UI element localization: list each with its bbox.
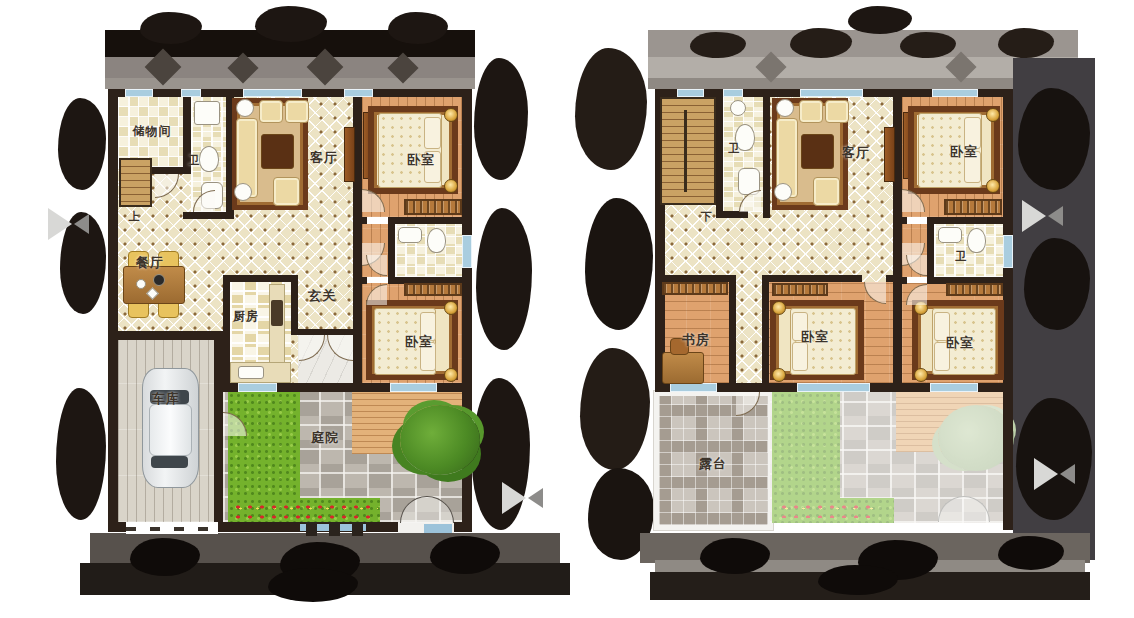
side-table: [774, 183, 792, 201]
coffee-table: [261, 134, 294, 169]
compass-arrow-icon: [48, 208, 92, 242]
floor-plan-image: 储物间 卫 客厅 卧室 餐厅 厨房 玄关 卧室 车库 庭院 上: [0, 0, 1134, 618]
staircase: [660, 97, 716, 205]
room-label-kitchen: 厨房: [233, 308, 259, 325]
room-label-storage: 储物间: [133, 123, 172, 140]
shower: [730, 100, 746, 116]
coffee-table: [801, 134, 834, 169]
window: [243, 89, 302, 97]
wardrobe: [404, 283, 462, 296]
tv-cabinet: [884, 127, 895, 182]
window: [238, 383, 277, 392]
room-label-bedroom2: 卧室: [405, 333, 433, 351]
toilet: [967, 228, 986, 253]
garage-door: [126, 522, 218, 534]
room-label-garage: 车库: [152, 390, 180, 408]
wardrobe: [946, 283, 1003, 296]
window: [797, 383, 870, 392]
window: [125, 89, 153, 97]
bedside-lamp: [986, 108, 1000, 122]
bedside-lamp: [772, 368, 786, 382]
window: [930, 383, 978, 392]
bedside-lamp: [444, 301, 458, 315]
tv-cabinet: [344, 127, 355, 182]
side-table: [776, 99, 794, 117]
wardrobe: [404, 199, 462, 215]
flower-bed: [302, 502, 378, 520]
armchair: [285, 100, 309, 123]
armchair: [813, 177, 840, 206]
compass-arrow-icon: [1022, 200, 1066, 234]
toilet: [199, 146, 219, 172]
window: [1003, 235, 1013, 268]
window: [344, 89, 373, 97]
shower: [194, 101, 220, 125]
bedside-lamp: [444, 368, 458, 382]
window: [390, 383, 437, 392]
bedside-lamp: [986, 179, 1000, 193]
sink: [398, 227, 422, 243]
room-label-study: 书房: [682, 331, 710, 349]
room-label-terrace: 露台: [699, 455, 727, 473]
bedside-lamp: [444, 108, 458, 122]
armchair: [799, 100, 823, 123]
armchair: [259, 100, 283, 123]
toilet: [427, 228, 446, 253]
desk: [662, 352, 704, 384]
window: [462, 235, 472, 268]
staircase: [119, 158, 152, 207]
compass-arrow-icon: [1034, 458, 1078, 492]
room-label-dining: 餐厅: [136, 254, 164, 272]
window: [670, 383, 717, 392]
window: [800, 89, 863, 97]
room-label-bedroom3: 卧室: [946, 334, 974, 352]
armchair: [825, 100, 849, 123]
room-label-living: 客厅: [842, 144, 870, 162]
window: [677, 89, 704, 97]
room-label-bath2: 卫: [956, 249, 967, 264]
room-label-bath1: 卫: [729, 141, 740, 156]
side-table: [236, 99, 254, 117]
wardrobe: [772, 283, 828, 296]
room-label-bedroom1: 卧室: [950, 143, 978, 161]
window: [932, 89, 978, 97]
bedside-lamp: [914, 368, 928, 382]
armchair: [273, 177, 300, 206]
ghost-courtyard: [770, 392, 1003, 523]
room-label-bath1: 卫: [189, 153, 200, 168]
bedside-lamp: [444, 179, 458, 193]
kitchen-sink: [238, 366, 264, 379]
window: [723, 89, 743, 97]
room-label-living: 客厅: [310, 149, 338, 167]
wardrobe: [944, 199, 1002, 215]
compass-arrow-icon: [502, 482, 546, 516]
sink: [938, 227, 962, 243]
stove: [271, 300, 283, 326]
courtyard-tree: [400, 405, 480, 475]
wardrobe: [662, 282, 728, 295]
window: [181, 89, 201, 97]
flower-bed: [232, 502, 302, 520]
room-label-entry: 玄关: [308, 287, 336, 305]
bedside-lamp: [772, 301, 786, 315]
side-table: [234, 183, 252, 201]
room-label-bedroom1: 卧室: [407, 151, 435, 169]
room-label-bedroom2: 卧室: [801, 328, 829, 346]
stair-direction-up: 上: [129, 209, 140, 224]
stair-direction-down: 下: [701, 209, 712, 224]
room-label-courtyard: 庭院: [311, 429, 339, 447]
